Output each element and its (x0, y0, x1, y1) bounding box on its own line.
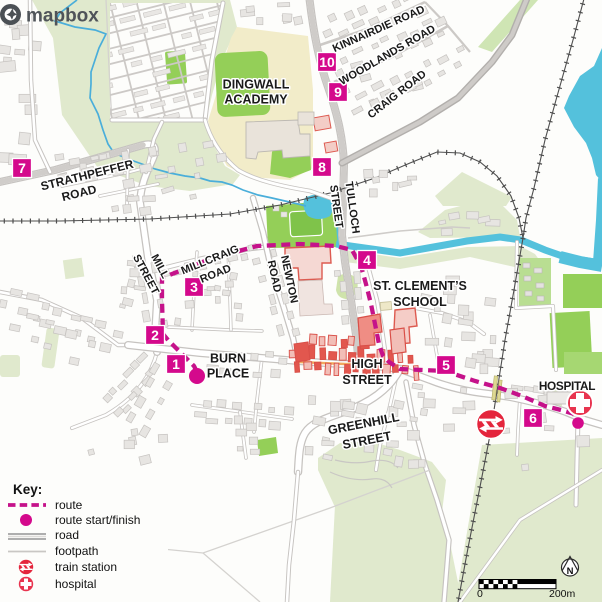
svg-text:HIGH: HIGH (351, 357, 382, 371)
svg-text:8: 8 (318, 159, 326, 175)
svg-text:0: 0 (477, 588, 483, 600)
svg-text:SCHOOL: SCHOOL (393, 295, 447, 309)
svg-text:DINGWALL: DINGWALL (223, 78, 290, 92)
svg-text:2: 2 (151, 327, 159, 343)
svg-text:10: 10 (319, 54, 335, 70)
svg-text:200m: 200m (549, 588, 576, 600)
svg-text:N: N (567, 566, 574, 577)
svg-text:6: 6 (529, 410, 537, 426)
svg-text:5: 5 (442, 357, 450, 373)
svg-text:7: 7 (18, 160, 26, 176)
svg-text:PLACE: PLACE (207, 367, 249, 381)
svg-text:BURN: BURN (210, 352, 246, 366)
svg-text:mapbox: mapbox (26, 6, 99, 27)
svg-text:train station: train station (55, 560, 117, 574)
svg-text:HOSPITAL: HOSPITAL (539, 379, 595, 393)
svg-text:route start/finish: route start/finish (55, 513, 140, 527)
svg-text:4: 4 (363, 252, 371, 268)
svg-text:9: 9 (334, 84, 342, 100)
svg-text:footpath: footpath (55, 544, 98, 558)
svg-text:hospital: hospital (55, 577, 96, 591)
svg-text:Key:: Key: (13, 482, 42, 497)
svg-text:ST. CLEMENT’S: ST. CLEMENT’S (373, 279, 467, 293)
svg-text:3: 3 (190, 279, 198, 295)
svg-text:route: route (55, 498, 83, 512)
svg-text:road: road (55, 528, 79, 542)
svg-text:STREET: STREET (342, 373, 392, 387)
svg-text:1: 1 (172, 356, 180, 372)
svg-text:ACADEMY: ACADEMY (224, 93, 288, 107)
